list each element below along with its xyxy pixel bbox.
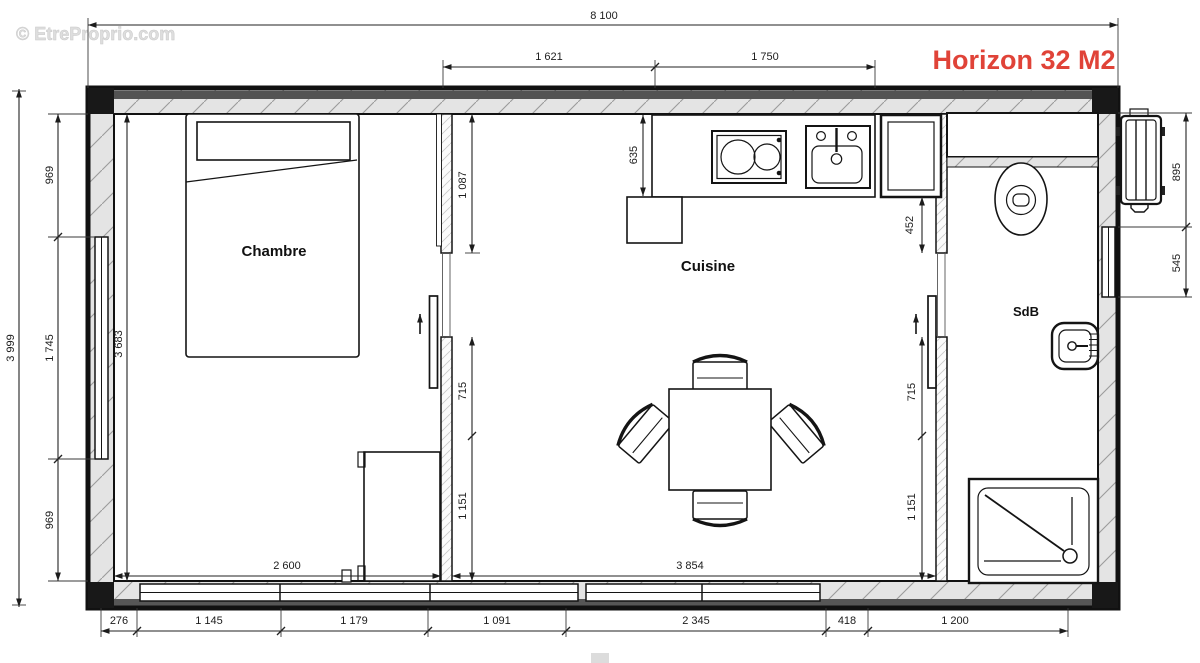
svg-text:1 151: 1 151 [457, 492, 469, 520]
tap [1068, 342, 1076, 350]
svg-text:8 100: 8 100 [590, 10, 618, 22]
bed [186, 114, 359, 357]
watermark-text: © EtreProprio.com [16, 24, 175, 44]
floor-plan-page: © EtreProprio.com Horizon 32 M2 [0, 0, 1200, 663]
svg-text:1 179: 1 179 [340, 615, 368, 627]
water-heater [1116, 109, 1165, 212]
svg-text:2 600: 2 600 [273, 560, 301, 572]
shower [969, 479, 1098, 583]
svg-text:2 345: 2 345 [682, 615, 710, 627]
storage-cabinet [881, 115, 941, 197]
svg-text:1 745: 1 745 [44, 334, 56, 362]
svg-text:1 200: 1 200 [941, 615, 969, 627]
svg-text:1 621: 1 621 [535, 51, 563, 63]
wardrobe [358, 452, 440, 581]
top-wall-band [90, 91, 1116, 99]
svg-text:715: 715 [457, 382, 469, 400]
corner-post [88, 88, 114, 114]
corner-post [1092, 88, 1118, 114]
dining-table [669, 389, 771, 490]
svg-text:1 750: 1 750 [751, 51, 779, 63]
sliding-door-panel [430, 296, 438, 388]
kitchen-bay-window [586, 584, 820, 601]
watermark-fragment [591, 653, 609, 663]
svg-text:276: 276 [110, 615, 128, 627]
room-label-bathroom: SdB [1013, 304, 1039, 319]
counter-extension [627, 197, 682, 243]
svg-text:969: 969 [44, 511, 56, 529]
svg-text:1 091: 1 091 [483, 615, 511, 627]
svg-text:1 087: 1 087 [457, 171, 469, 199]
svg-text:3 683: 3 683 [113, 330, 125, 358]
drain [1063, 549, 1077, 563]
svg-text:715: 715 [906, 383, 918, 401]
toilet [995, 163, 1047, 235]
right-wall-window [1102, 227, 1115, 297]
corner-post [1092, 582, 1118, 608]
svg-text:545: 545 [1171, 254, 1183, 272]
svg-text:3 854: 3 854 [676, 560, 704, 572]
svg-text:418: 418 [838, 615, 856, 627]
door-track [437, 114, 442, 246]
pillow [197, 122, 350, 160]
bathroom-shelf [947, 113, 1098, 167]
stove [712, 131, 786, 183]
svg-text:635: 635 [628, 146, 640, 164]
svg-text:1 151: 1 151 [906, 493, 918, 521]
floor-plan: © EtreProprio.com Horizon 32 M2 [0, 0, 1200, 663]
svg-text:452: 452 [904, 216, 916, 234]
bathroom-sink [1052, 323, 1098, 369]
partition-bedroom-kitchen [441, 114, 452, 581]
room-label-bedroom: Chambre [241, 243, 306, 260]
svg-text:3 999: 3 999 [5, 334, 17, 362]
svg-text:1 145: 1 145 [195, 615, 223, 627]
corner-post [88, 582, 114, 608]
kitchen-sink [806, 126, 870, 188]
sliding-door-panel [928, 296, 936, 388]
left-wall-window [95, 237, 108, 459]
svg-text:969: 969 [44, 166, 56, 184]
svg-text:895: 895 [1171, 163, 1183, 181]
plan-title: Horizon 32 M2 [932, 45, 1115, 75]
room-label-kitchen: Cuisine [681, 258, 735, 275]
